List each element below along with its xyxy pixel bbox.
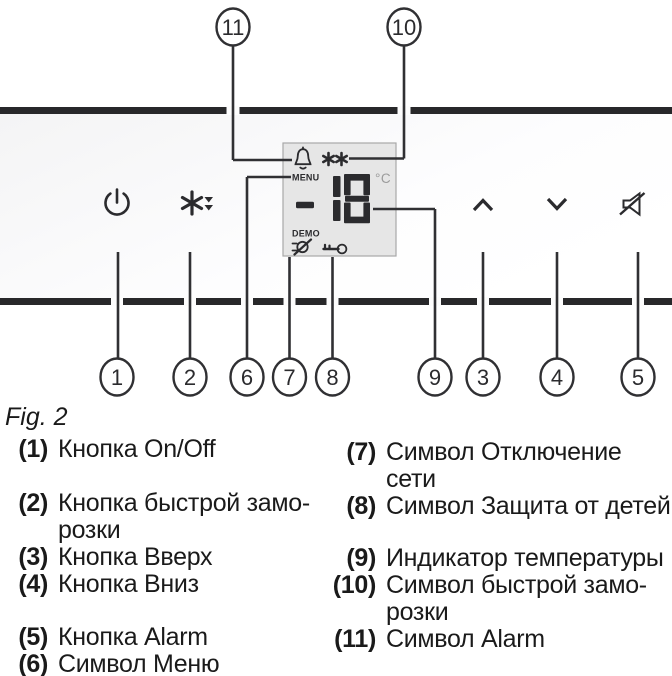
temperature-unit-label: °C — [375, 171, 391, 186]
svg-text:1: 1 — [111, 365, 123, 390]
legend-item-number: (9) — [330, 545, 376, 572]
legend-item-label: Символ быстрой замо- — [386, 572, 672, 599]
legend-item-label: Символ Защита от детей — [386, 493, 672, 520]
legend-item-1: (1) Кнопка On/Off — [2, 436, 332, 463]
legend-column-left: (1) Кнопка On/Off (2) Кнопка быстрой зам… — [2, 436, 332, 676]
legend-item-number: (7) — [330, 439, 376, 493]
legend-item-label: розки — [386, 599, 672, 626]
legend-item-8: (8) Символ Защита от детей — [330, 493, 672, 520]
legend-item-6: (6) Символ Меню — [2, 651, 332, 676]
svg-text:8: 8 — [326, 365, 338, 390]
legend-item-label: Кнопка быстрой замо- — [58, 490, 332, 517]
legend-item-label: Индикатор температуры — [386, 545, 672, 572]
legend-column-right: (7) Символ Отключение сети (8) Символ За… — [330, 439, 672, 653]
callout-4: 4 — [541, 359, 574, 396]
svg-text:3: 3 — [477, 365, 489, 390]
figure-caption: Fig. 2 — [5, 404, 68, 431]
legend-item-number: (2) — [2, 490, 48, 544]
legend-item-label: Символ Отключение — [386, 439, 672, 466]
callout-8: 8 — [316, 359, 349, 396]
legend-item-label: Кнопка Вниз — [58, 571, 332, 598]
callout-11: 11 — [217, 9, 250, 46]
svg-text:10: 10 — [392, 15, 416, 40]
svg-text:11: 11 — [222, 15, 245, 40]
legend-item-2: (2) Кнопка быстрой замо- розки — [2, 490, 332, 544]
svg-text:7: 7 — [283, 365, 295, 390]
svg-text:9: 9 — [429, 365, 441, 390]
legend-item-number: (5) — [2, 624, 48, 651]
svg-text:2: 2 — [184, 365, 196, 390]
legend-item-label: розки — [58, 517, 332, 544]
control-panel-diagram: MENU °C DEMO — [0, 0, 672, 410]
callout-1: 1 — [101, 359, 134, 396]
legend-item-label: Кнопка On/Off — [58, 436, 332, 463]
svg-text:6: 6 — [241, 365, 253, 390]
legend-item-4: (4) Кнопка Вниз — [2, 571, 332, 598]
demo-label: DEMO — [292, 229, 320, 239]
svg-text:4: 4 — [551, 365, 563, 390]
callout-10: 10 — [388, 9, 421, 46]
legend-item-7: (7) Символ Отключение сети — [330, 439, 672, 493]
callout-3: 3 — [467, 359, 500, 396]
legend-item-10: (10) Символ быстрой замо- розки — [330, 572, 672, 626]
panel-top-bar — [0, 106, 672, 115]
minus-indicator — [296, 202, 314, 208]
legend-item-label: Символ Alarm — [386, 626, 672, 653]
callout-6: 6 — [231, 359, 264, 396]
legend-item-number: (1) — [2, 436, 48, 463]
legend-item-11: (11) Символ Alarm — [330, 626, 672, 653]
legend-item-number: (4) — [2, 571, 48, 598]
legend-item-3: (3) Кнопка Вверх — [2, 544, 332, 571]
legend-item-number: (10) — [330, 572, 376, 626]
menu-symbol-label: MENU — [292, 173, 319, 183]
legend-item-number: (6) — [2, 651, 48, 676]
svg-text:5: 5 — [632, 365, 644, 390]
manual-page: 18 ** — [0, 0, 672, 676]
legend-item-5: (5) Кнопка Alarm — [2, 624, 332, 651]
callout-2: 2 — [174, 359, 207, 396]
legend-item-9: (9) Индикатор температуры — [330, 545, 672, 572]
legend-item-label: Символ Меню — [58, 651, 332, 676]
legend-item-label: Кнопка Вверх — [58, 544, 332, 571]
panel-bottom-bar — [0, 297, 672, 306]
legend-item-number: (3) — [2, 544, 48, 571]
legend-item-number: (11) — [330, 626, 376, 653]
callout-9: 9 — [419, 359, 452, 396]
callout-5: 5 — [622, 359, 655, 396]
legend-item-label: сети — [386, 466, 672, 493]
legend-item-number: (8) — [330, 493, 376, 520]
callout-7: 7 — [273, 359, 306, 396]
legend-item-label: Кнопка Alarm — [58, 624, 332, 651]
